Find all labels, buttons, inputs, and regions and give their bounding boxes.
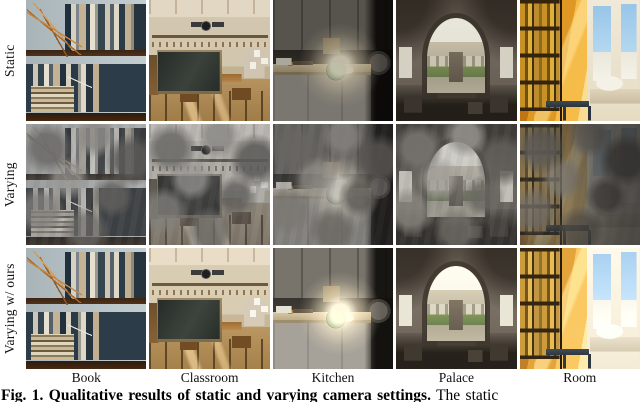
image-ours-kitchen xyxy=(273,248,393,369)
image-ours-book xyxy=(26,248,146,369)
column-label-classroom: Classroom xyxy=(149,370,269,386)
column-label-book: Book xyxy=(26,370,146,386)
image-varying-palace xyxy=(396,124,516,245)
image-varying-classroom xyxy=(149,124,269,245)
image-varying-book xyxy=(26,124,146,245)
image-static-kitchen xyxy=(273,0,393,121)
figure-caption: Fig. 1. Qualitative results of static an… xyxy=(1,386,640,402)
paper-figure-1: Static Varying Varying w/ ours Book Clas… xyxy=(0,0,640,402)
image-ours-room xyxy=(520,248,640,369)
image-static-book xyxy=(26,0,146,121)
figure-caption-rest: The static xyxy=(436,387,498,402)
image-static-classroom xyxy=(149,0,269,121)
image-varying-kitchen xyxy=(273,124,393,245)
image-varying-room xyxy=(520,124,640,245)
column-labels: Book Classroom Kitchen Palace Room xyxy=(26,370,640,386)
column-label-kitchen: Kitchen xyxy=(273,370,393,386)
row-label-varying: Varying xyxy=(2,124,24,245)
row-label-static: Static xyxy=(2,0,24,121)
image-static-room xyxy=(520,0,640,121)
column-label-palace: Palace xyxy=(396,370,516,386)
image-static-palace xyxy=(396,0,516,121)
image-grid xyxy=(26,0,640,369)
image-ours-palace xyxy=(396,248,516,369)
row-label-varying-w-ours: Varying w/ ours xyxy=(2,248,24,369)
column-label-room: Room xyxy=(520,370,640,386)
image-ours-classroom xyxy=(149,248,269,369)
figure-caption-bold: Fig. 1. Qualitative results of static an… xyxy=(1,387,431,402)
